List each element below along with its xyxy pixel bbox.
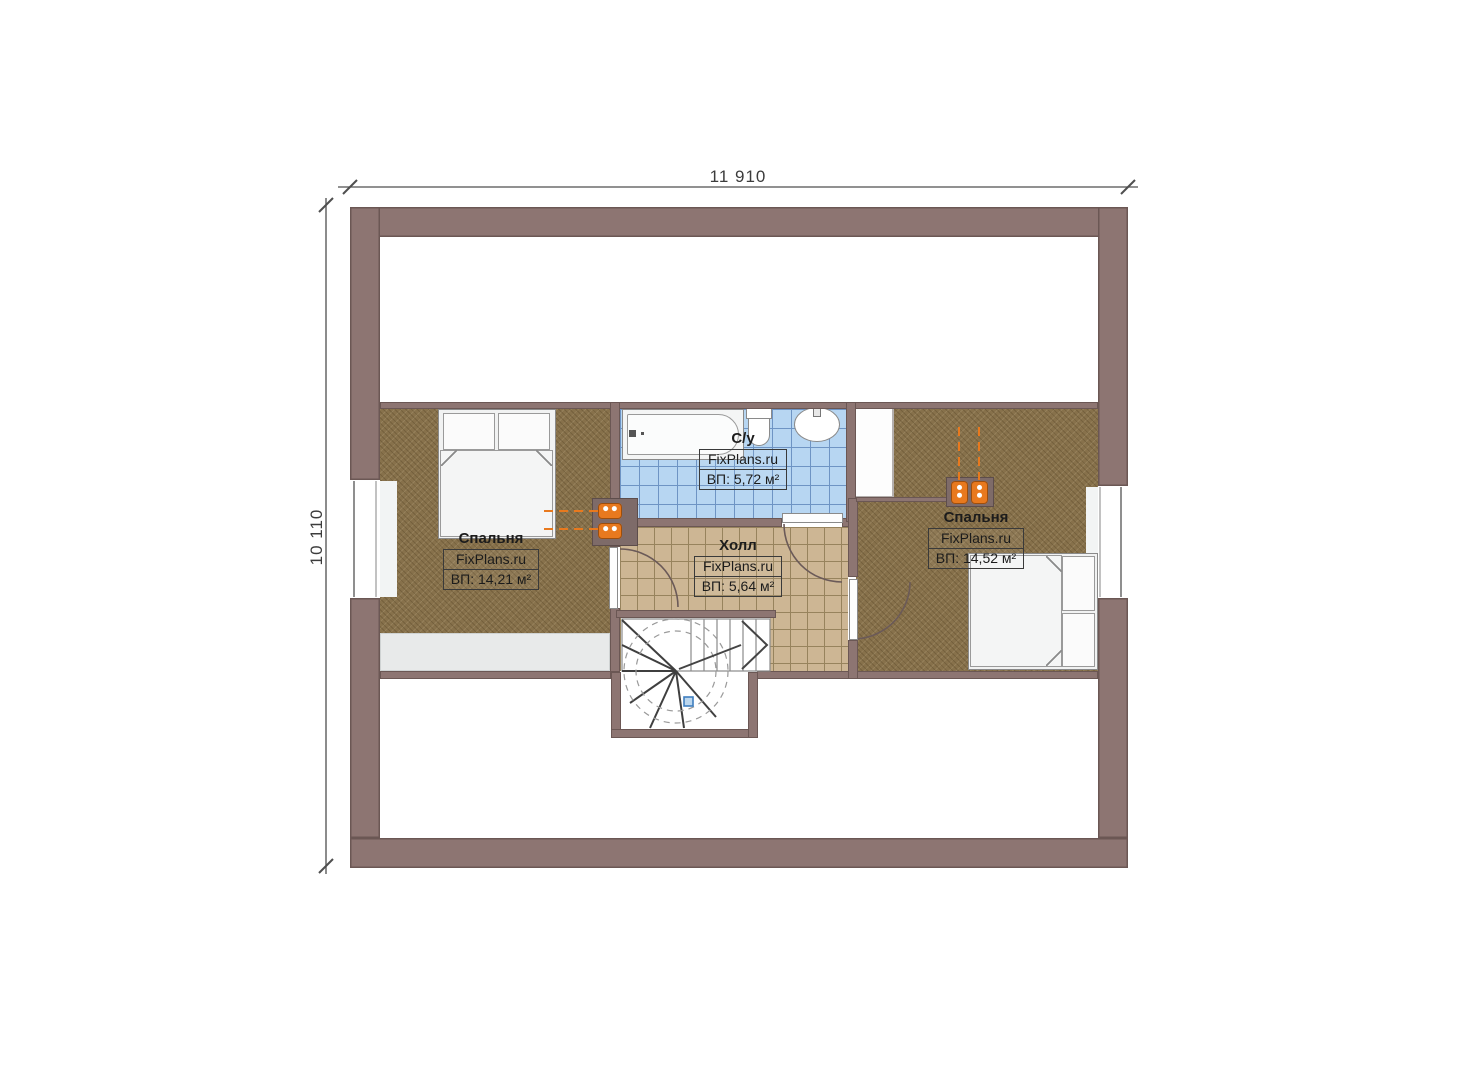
wall-exterior-left-lower	[350, 598, 380, 838]
wall-exterior-right-upper	[1098, 207, 1128, 486]
stair-opening	[621, 618, 770, 671]
bed-right-fold-2	[1046, 650, 1062, 666]
window-left-frame-outer	[353, 481, 355, 597]
wall-bath-hall-left	[620, 518, 782, 527]
watermark-bedroom-right: FixPlans.ru	[929, 529, 1023, 548]
bathtub-drain	[641, 432, 644, 435]
bed-left	[438, 409, 556, 539]
window-left-recess	[380, 481, 397, 597]
window-right	[1098, 486, 1128, 598]
room-label-bedroom-left: Спальня FixPlans.ru ВП: 14,21 м²	[426, 531, 556, 590]
watermark-bedroom-left: FixPlans.ru	[444, 550, 538, 569]
wall-attic-bottom-right	[757, 671, 1098, 679]
area-bedroom-left: ВП: 14,21 м²	[444, 569, 538, 589]
wall-exterior-bottom	[350, 838, 1128, 868]
bed-left-pillow-1	[443, 413, 495, 450]
knee-wall-bedroomright	[856, 497, 947, 502]
area-bedroom-right: ВП: 14,52 м²	[929, 548, 1023, 568]
room-name-bedroom-left: Спальня	[459, 531, 524, 547]
closet-niche	[856, 409, 894, 498]
room-name-bathroom: С/у	[731, 431, 754, 447]
bed-left-fold-2	[536, 450, 552, 466]
wall-exterior-right-lower	[1098, 598, 1128, 838]
heater-fixture-left-1	[598, 503, 622, 519]
bed-right	[968, 553, 1098, 670]
bedroom-left-ledge	[380, 633, 610, 671]
window-left-frame-inner	[375, 481, 377, 597]
wall-hall-bedroomright-upper	[848, 498, 858, 577]
bed-right-pillow-2	[1062, 613, 1095, 667]
watermark-bathroom: FixPlans.ru	[700, 450, 787, 469]
room-label-bedroom-right: Спальня FixPlans.ru ВП: 14,52 м²	[918, 510, 1034, 569]
stairwell-interior	[621, 672, 748, 729]
window-right-frame-outer	[1120, 487, 1122, 597]
bed-right-pillow-1	[1062, 556, 1095, 611]
room-box-bedroom-left: FixPlans.ru ВП: 14,21 м²	[443, 549, 539, 590]
door-bedroom-right	[849, 579, 858, 640]
dimension-top-label: 11 910	[688, 167, 788, 187]
room-name-bedroom-right: Спальня	[944, 510, 1009, 526]
wall-stairwell-bottom	[611, 729, 758, 738]
bed-left-pillow-2	[498, 413, 550, 450]
wall-attic-bottom-left	[380, 671, 611, 679]
heater-fixture-left-2	[598, 523, 622, 539]
room-box-bathroom: FixPlans.ru ВП: 5,72 м²	[699, 449, 788, 490]
bed-left-fold-1	[441, 450, 457, 466]
area-bathroom: ВП: 5,72 м²	[700, 469, 787, 489]
wall-attic-top	[380, 402, 1098, 409]
door-bathroom	[782, 513, 843, 523]
bathtub-faucet	[629, 430, 636, 437]
wall-exterior-top	[350, 207, 1128, 237]
room-label-hall: Холл FixPlans.ru ВП: 5,64 м²	[683, 538, 793, 597]
room-box-hall: FixPlans.ru ВП: 5,64 м²	[694, 556, 783, 597]
wall-stair-top	[616, 610, 776, 618]
door-bedroom-left	[609, 547, 618, 609]
room-name-hall: Холл	[719, 538, 757, 554]
room-label-bathroom: С/у FixPlans.ru ВП: 5,72 м²	[688, 431, 798, 490]
wall-hall-bedroomright-lower	[848, 640, 858, 679]
room-box-bedroom-right: FixPlans.ru ВП: 14,52 м²	[928, 528, 1024, 569]
wall-stairwell-right	[748, 672, 758, 738]
watermark-hall: FixPlans.ru	[695, 557, 782, 576]
heater-fixture-right-1	[951, 481, 968, 504]
floor-plan-canvas: 11 910 10 110 Спальня FixPlans.ru ВП: 14…	[0, 0, 1474, 1080]
wall-exterior-left-upper	[350, 207, 380, 480]
bed-right-fold-1	[1046, 556, 1062, 572]
dimension-left-label: 10 110	[307, 487, 327, 587]
heater-fixture-right-2	[971, 481, 988, 504]
area-hall: ВП: 5,64 м²	[695, 576, 782, 596]
window-right-frame-inner	[1099, 487, 1101, 597]
